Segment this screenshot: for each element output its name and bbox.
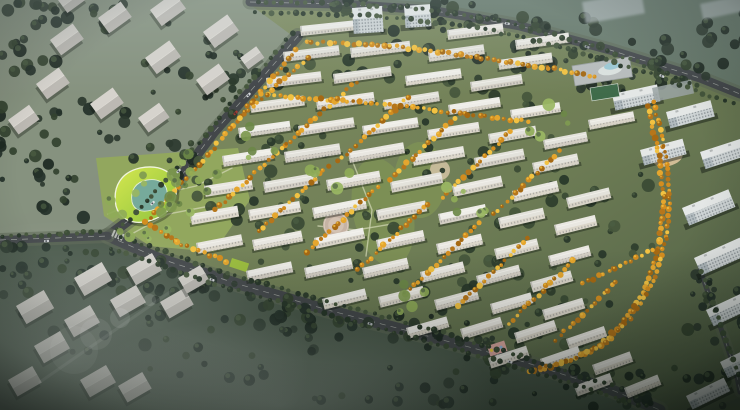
vignette — [0, 0, 740, 410]
atmosphere-layer — [0, 0, 740, 410]
masterplan-aerial-scene — [0, 0, 740, 410]
aerial-render-viewport — [0, 0, 740, 410]
